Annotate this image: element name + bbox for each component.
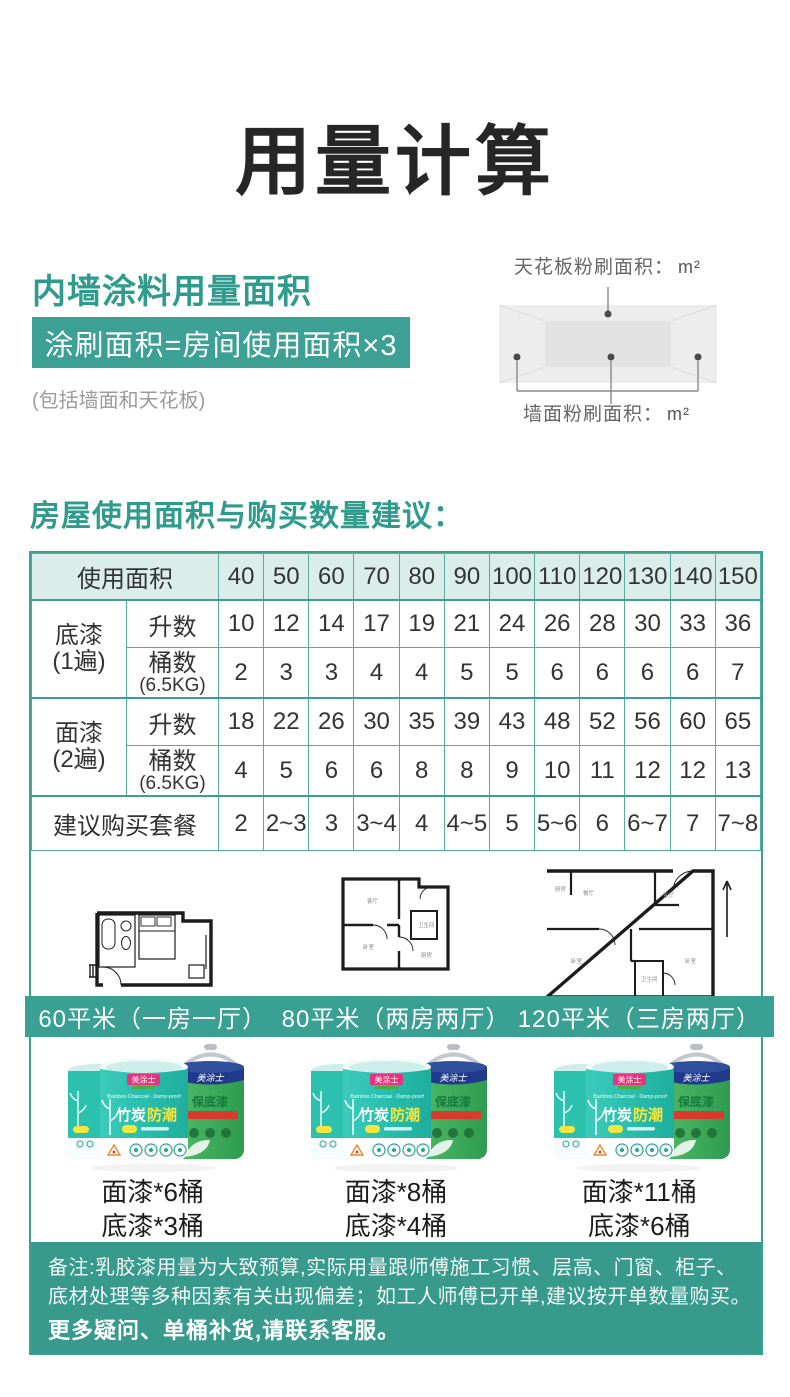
header-area-value: 60 <box>309 554 354 601</box>
footer-line-2: 底材处理等多种因素有关出现偏差；如工人师傅已开单,建议按开单数量购买。 <box>48 1283 744 1312</box>
bucket-topcoat-main: 美涂士 Bamboo Charcoal · Damp-proof 竹炭 防潮 <box>586 1059 674 1161</box>
header-area-value: 150 <box>715 554 760 601</box>
primer-buckets-row: 桶数 (6.5KG) 2 3 3 4 4 5 5 6 6 6 6 7 <box>32 648 761 699</box>
primer-count: 底漆*4桶 <box>345 1209 448 1243</box>
page-title: 用量计算 <box>0 100 790 210</box>
topcoat-count: 面漆*8桶 <box>345 1175 448 1209</box>
cell: 3~4 <box>354 796 399 851</box>
header-area-value: 120 <box>580 554 625 601</box>
topcoat-pass: (2遍) <box>32 747 126 773</box>
table-header-row: 使用面积 40 50 60 70 80 90 100 110 120 130 1… <box>32 554 761 601</box>
ceiling-area-label: 天花板粉刷面积：m² <box>514 252 701 279</box>
bucket-topcoat-main: 美涂士 Bamboo Charcoal · Damp-proof 竹炭 防潮 <box>343 1059 431 1161</box>
cell: 4 <box>354 648 399 699</box>
cell: 4 <box>399 796 444 851</box>
cell: 6 <box>580 796 625 851</box>
cell: 6 <box>354 746 399 797</box>
buckets-label-main: 桶数 <box>127 652 218 676</box>
cell: 4~5 <box>444 796 489 851</box>
header-area-value: 50 <box>264 554 309 601</box>
floorplan-col-120: 厨房 餐厅 客厅 卧室 卫生间 卧室 <box>518 861 761 1009</box>
cell: 6 <box>670 648 715 699</box>
footer-note: 备注:乳胶漆用量为大致预算,实际用量跟师傅施工习惯、层高、门窗、柜子、 底材处理… <box>31 1242 761 1353</box>
header-area-value: 40 <box>219 554 264 601</box>
cell: 12 <box>670 746 715 797</box>
cell: 10 <box>535 746 580 797</box>
primer-name: 底漆 <box>32 623 126 649</box>
room-label: 卧室 <box>363 943 375 951</box>
product-subtitle: Bamboo Charcoal · Damp-proof <box>594 1094 668 1100</box>
header-area-value: 110 <box>535 554 580 601</box>
usage-table: 使用面积 40 50 60 70 80 90 100 110 120 130 1… <box>31 553 761 851</box>
suggest-row: 建议购买套餐 2 2~3 3 3~4 4 4~5 5 5~6 6 6~7 7 7… <box>32 796 761 851</box>
room-diagram <box>493 283 725 407</box>
buckets-label: 桶数 (6.5KG) <box>127 648 219 699</box>
cell: 24 <box>489 600 534 648</box>
cell: 18 <box>219 698 264 746</box>
section-table-heading: 房屋使用面积与购买数量建议： <box>30 491 464 535</box>
primer-count: 底漆*6桶 <box>588 1209 691 1243</box>
header-area-value: 70 <box>354 554 399 601</box>
paint-buckets-image: 美涂士 保底漆 美涂士 Bamboo Charcoal · <box>301 1041 491 1173</box>
room-label: 卧室 <box>571 957 583 965</box>
cell: 8 <box>444 746 489 797</box>
cell: 4 <box>219 746 264 797</box>
floorplan-60 <box>87 907 219 993</box>
cell: 5 <box>264 746 309 797</box>
cell: 7 <box>715 648 760 699</box>
buckets-label-sub: (6.5KG) <box>127 676 218 696</box>
plan-caption-60: 60平米（一房一厅） <box>25 996 280 1037</box>
cell: 52 <box>580 698 625 746</box>
cell: 3 <box>264 648 309 699</box>
wall-area-label: 墙面粉刷面积：m² <box>523 399 690 426</box>
cell: 19 <box>399 600 444 648</box>
header-area-value: 80 <box>399 554 444 601</box>
floorplan-col-60 <box>31 861 274 1009</box>
paint-buckets-image: 美涂士 保底漆 美涂士 Bamboo Charcoal · <box>58 1041 248 1173</box>
cell: 39 <box>444 698 489 746</box>
cell: 26 <box>309 698 354 746</box>
product-buckets-row: 美涂士 保底漆 美涂士 Bamboo Charcoal · <box>31 1041 761 1175</box>
room-label: 客厅 <box>663 891 675 899</box>
cell: 36 <box>715 600 760 648</box>
suggest-label: 建议购买套餐 <box>32 796 219 851</box>
header-area-value: 140 <box>670 554 715 601</box>
header-area-value: 100 <box>489 554 534 601</box>
badge-pill <box>365 1125 380 1133</box>
brand-label: 美涂士 <box>439 1073 467 1083</box>
cell: 11 <box>580 746 625 797</box>
cell: 5 <box>489 648 534 699</box>
cell: 6 <box>535 648 580 699</box>
section-usage-heading: 内墙涂料用量面积 <box>32 264 312 313</box>
primer-product-name: 保底漆 <box>677 1094 714 1109</box>
package-2: 面漆*8桶 底漆*4桶 <box>274 1175 517 1243</box>
cell: 22 <box>264 698 309 746</box>
ceiling-unit: m² <box>678 257 701 277</box>
room-back-wall <box>545 321 671 367</box>
bucket-group-2: 美涂士 保底漆 美涂士 Bamboo Charcoal · <box>274 1041 517 1175</box>
cell: 30 <box>354 698 399 746</box>
buckets-label: 桶数 (6.5KG) <box>127 746 219 797</box>
cell: 8 <box>399 746 444 797</box>
package-1: 面漆*6桶 底漆*3桶 <box>31 1175 274 1243</box>
package-3: 面漆*11桶 底漆*6桶 <box>518 1175 761 1243</box>
cell: 28 <box>580 600 625 648</box>
cell: 6 <box>309 746 354 797</box>
room-label: 卧室 <box>685 957 697 965</box>
cell: 60 <box>670 698 715 746</box>
product-name-part2: 防潮 <box>633 1106 663 1124</box>
plan-caption-80: 80平米（两房两厅） <box>269 996 524 1037</box>
plan-captions-row: 60平米（一房一厅） 80平米（两房两厅） 120平米（三房两厅） <box>31 996 761 1037</box>
cell: 30 <box>625 600 670 648</box>
cell: 3 <box>309 648 354 699</box>
footer-line-1: 备注:乳胶漆用量为大致预算,实际用量跟师傅施工习惯、层高、门窗、柜子、 <box>48 1254 744 1283</box>
cell: 2 <box>219 648 264 699</box>
floorplans-row: 客厅 卧室 卫生间 厨房 <box>31 861 761 1009</box>
primer-liters-row: 底漆 (1遍) 升数 10 12 14 17 19 21 24 26 28 30… <box>32 600 761 648</box>
bucket-group-3: 美涂士 保底漆 美涂士 Bamboo Charcoal · <box>518 1041 761 1175</box>
primer-product-name: 保底漆 <box>434 1094 471 1109</box>
floorplan-80: 客厅 卧室 卫生间 厨房 <box>339 875 452 975</box>
room-label: 卫生间 <box>641 975 658 983</box>
cell: 6 <box>625 648 670 699</box>
brand-label: 美涂士 <box>131 1075 155 1085</box>
cell: 3 <box>309 796 354 851</box>
paint-buckets-image: 美涂士 保底漆 美涂士 Bamboo Charcoal · <box>544 1041 734 1173</box>
topcoat-buckets-row: 桶数 (6.5KG) 4 5 6 6 8 8 9 10 11 12 12 13 <box>32 746 761 797</box>
plan-caption-120: 120平米（三房两厅） <box>505 996 774 1037</box>
floorplan-col-80: 客厅 卧室 卫生间 厨房 <box>274 861 517 1009</box>
cell: 65 <box>715 698 760 746</box>
buckets-label-main: 桶数 <box>127 750 218 774</box>
cell: 6 <box>580 648 625 699</box>
brand-label: 美涂士 <box>618 1075 642 1085</box>
product-subtitle: Bamboo Charcoal · Damp-proof <box>350 1094 424 1100</box>
cell: 26 <box>535 600 580 648</box>
room-label: 餐厅 <box>583 889 595 897</box>
topcoat-liters-row: 面漆 (2遍) 升数 18 22 26 30 35 39 43 48 52 56… <box>32 698 761 746</box>
cell: 12 <box>264 600 309 648</box>
cell: 56 <box>625 698 670 746</box>
floorplan-120: 厨房 餐厅 客厅 卧室 卫生间 卧室 <box>543 865 735 1007</box>
badge-pill <box>608 1125 623 1133</box>
primer-product-name: 保底漆 <box>191 1094 228 1109</box>
wall-unit: m² <box>667 404 690 424</box>
cell: 48 <box>535 698 580 746</box>
cell: 43 <box>489 698 534 746</box>
cell: 6~7 <box>625 796 670 851</box>
product-name-part1: 竹炭 <box>115 1106 146 1124</box>
primer-pass: (1遍) <box>32 649 126 675</box>
content-container: 使用面积 40 50 60 70 80 90 100 110 120 130 1… <box>29 551 763 1355</box>
header-area-label: 使用面积 <box>32 554 219 601</box>
footer-line-3: 更多疑问、单桶补货,请联系客服。 <box>48 1315 744 1347</box>
room-label: 卫生间 <box>418 921 435 929</box>
header-area-value: 130 <box>625 554 670 601</box>
cell: 7~8 <box>715 796 760 851</box>
cell: 14 <box>309 600 354 648</box>
brand-label: 美涂士 <box>374 1075 398 1085</box>
cell: 4 <box>399 648 444 699</box>
topcoat-count: 面漆*11桶 <box>582 1175 697 1209</box>
cell: 7 <box>670 796 715 851</box>
buckets-label-sub: (6.5KG) <box>127 774 218 794</box>
row-group-topcoat: 面漆 (2遍) <box>32 698 127 796</box>
topcoat-name: 面漆 <box>32 721 126 747</box>
row-group-primer: 底漆 (1遍) <box>32 600 127 698</box>
cell: 33 <box>670 600 715 648</box>
topcoat-count: 面漆*6桶 <box>101 1175 204 1209</box>
cell: 2 <box>219 796 264 851</box>
cell: 13 <box>715 746 760 797</box>
product-name-part1: 竹炭 <box>601 1106 632 1124</box>
room-label: 厨房 <box>421 951 433 959</box>
liters-label: 升数 <box>127 698 219 746</box>
brand-label: 美涂士 <box>683 1073 711 1083</box>
brand-label: 美涂士 <box>196 1073 224 1083</box>
product-name-part2: 防潮 <box>147 1106 177 1124</box>
product-name-part1: 竹炭 <box>358 1106 389 1124</box>
cell: 35 <box>399 698 444 746</box>
cell: 10 <box>219 600 264 648</box>
room-label: 厨房 <box>555 885 567 893</box>
formula-box: 涂刷面积=房间使用面积×3 <box>32 317 410 368</box>
liters-label: 升数 <box>127 600 219 648</box>
package-counts-row: 面漆*6桶 底漆*3桶 面漆*8桶 底漆*4桶 面漆*11桶 底漆*6桶 <box>31 1175 761 1243</box>
header-area-value: 90 <box>444 554 489 601</box>
badge-pill <box>122 1125 137 1133</box>
cell: 2~3 <box>264 796 309 851</box>
cell: 17 <box>354 600 399 648</box>
bucket-group-1: 美涂士 保底漆 美涂士 Bamboo Charcoal · <box>31 1041 274 1175</box>
cell: 5 <box>444 648 489 699</box>
product-name-part2: 防潮 <box>390 1106 420 1124</box>
product-subtitle: Bamboo Charcoal · Damp-proof <box>107 1094 181 1100</box>
room-label: 客厅 <box>367 897 379 905</box>
cell: 21 <box>444 600 489 648</box>
formula-note: (包括墙面和天花板) <box>32 384 205 413</box>
cell: 9 <box>489 746 534 797</box>
cell: 12 <box>625 746 670 797</box>
cell: 5 <box>489 796 534 851</box>
formula-text: 涂刷面积=房间使用面积×3 <box>45 322 398 364</box>
bucket-topcoat-main: 美涂士 Bamboo Charcoal · Damp-proof 竹炭 防潮 <box>100 1059 188 1161</box>
cell: 5~6 <box>535 796 580 851</box>
ceiling-label-text: 天花板粉刷面积： <box>514 257 674 278</box>
primer-count: 底漆*3桶 <box>101 1209 204 1243</box>
wall-label-text: 墙面粉刷面积： <box>523 404 663 425</box>
